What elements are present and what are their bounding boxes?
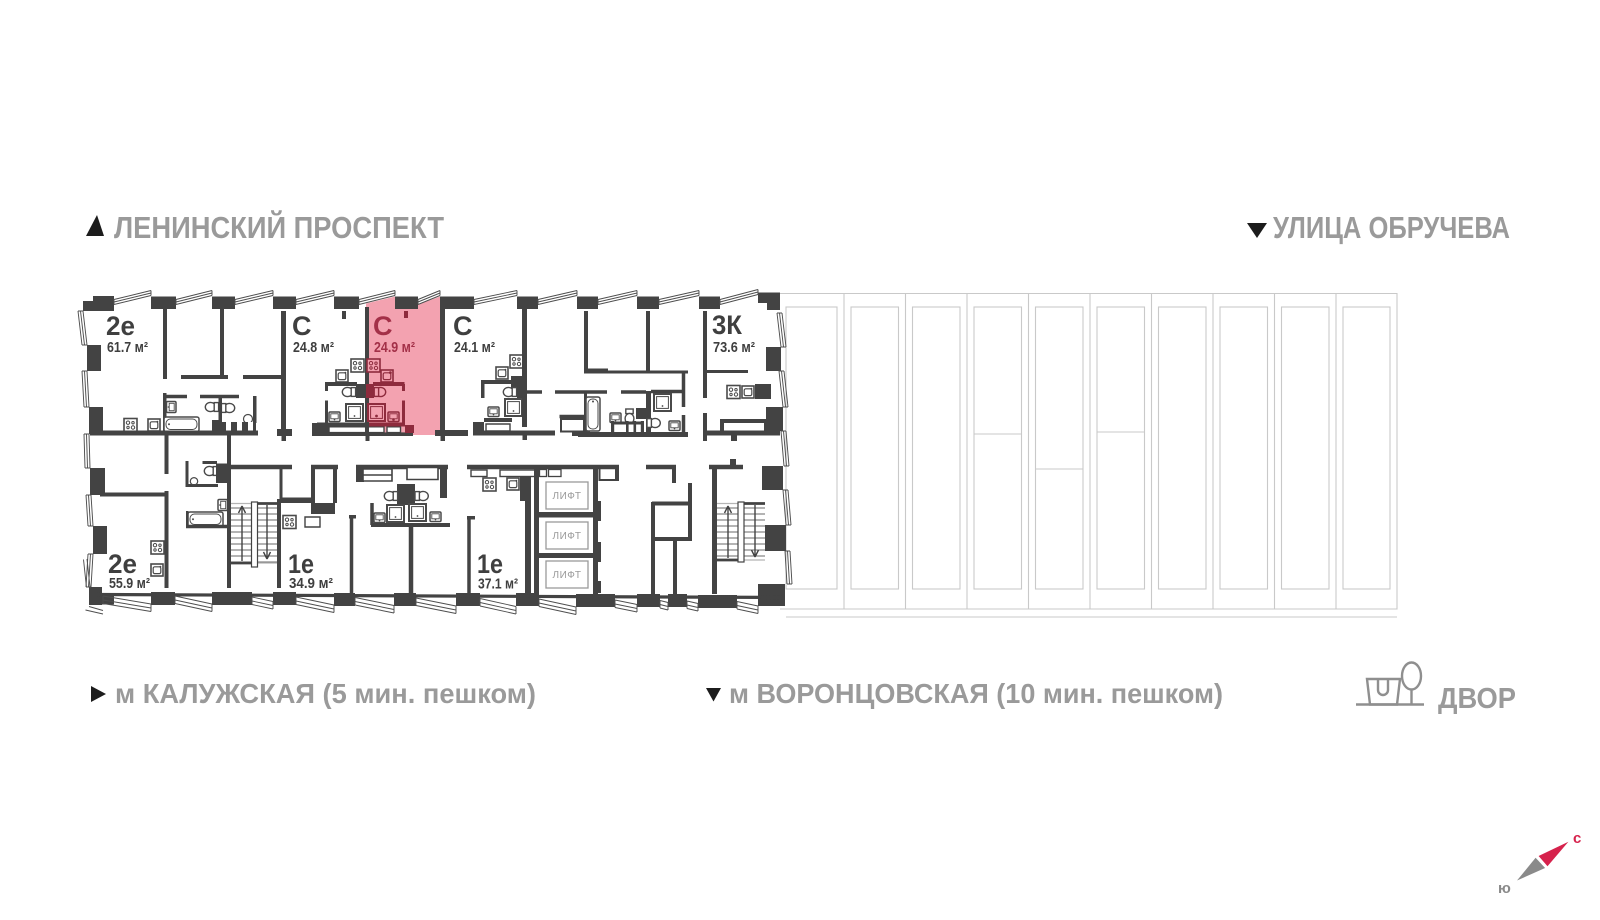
svg-text:1е: 1е [477, 549, 503, 579]
svg-text:24.8 м²: 24.8 м² [293, 340, 334, 356]
svg-text:73.6 м²: 73.6 м² [713, 340, 755, 356]
svg-text:ю: ю [1498, 880, 1511, 897]
svg-text:61.7 м²: 61.7 м² [107, 340, 148, 356]
svg-text:2е: 2е [108, 549, 137, 579]
svg-text:м ВОРОНЦОВСКАЯ (10 мин. пешко: м ВОРОНЦОВСКАЯ (10 мин. пешком) [729, 678, 1223, 709]
svg-text:УЛИЦА ОБРУЧЕВА: УЛИЦА ОБРУЧЕВА [1273, 210, 1510, 245]
svg-text:37.1 м²: 37.1 м² [478, 577, 518, 593]
svg-text:с: с [1573, 830, 1581, 847]
svg-text:ДВОР: ДВОР [1438, 683, 1516, 715]
svg-text:24.9 м²: 24.9 м² [374, 340, 415, 356]
svg-text:34.9 м²: 34.9 м² [289, 576, 333, 592]
svg-text:С: С [453, 311, 473, 341]
svg-text:м КАЛУЖСКАЯ (5 мин. пешком): м КАЛУЖСКАЯ (5 мин. пешком) [115, 678, 536, 709]
svg-text:24.1 м²: 24.1 м² [454, 340, 495, 356]
svg-text:2е: 2е [106, 311, 135, 341]
svg-text:55.9 м²: 55.9 м² [109, 576, 150, 592]
svg-text:С: С [292, 311, 312, 341]
svg-text:ЛИФТ: ЛИФТ [553, 491, 582, 502]
svg-text:1е: 1е [288, 549, 314, 579]
svg-text:ЛИФТ: ЛИФТ [553, 531, 582, 542]
svg-text:ЛИФТ: ЛИФТ [553, 570, 582, 581]
svg-text:С: С [373, 311, 393, 341]
svg-text:ЛЕНИНСКИЙ ПРОСПЕКТ: ЛЕНИНСКИЙ ПРОСПЕКТ [114, 209, 444, 245]
svg-text:3К: 3К [712, 310, 742, 340]
